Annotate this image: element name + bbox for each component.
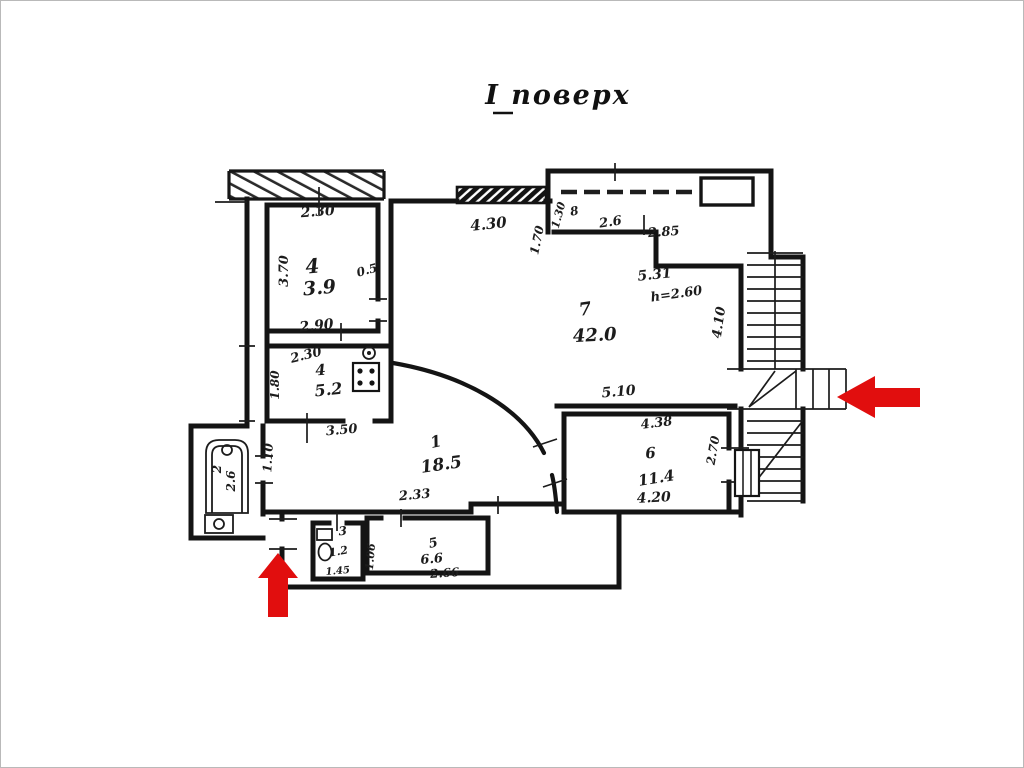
balcony-number: 8 — [569, 203, 580, 218]
walls-thick — [191, 171, 803, 587]
window-band — [457, 187, 546, 203]
dim-r1-bottom: 2.33 — [397, 487, 431, 505]
dim-r7-bottom: 5.10 — [601, 383, 637, 402]
room4-number: 4 — [304, 253, 320, 278]
room2-area: 2.6 — [224, 470, 238, 493]
dim-balcony-top: 2.85 — [646, 224, 680, 241]
room1-area: 18.5 — [419, 452, 463, 478]
room3-area: 1.2 — [328, 543, 349, 559]
dim-r7-right: 4.10 — [710, 306, 729, 339]
page-title: І поверх — [484, 80, 631, 111]
kitchen-sink-icon — [363, 347, 375, 359]
room7-number: 7 — [578, 298, 594, 321]
dim-r7-top: 4.30 — [469, 213, 508, 235]
dim-r4-door: 0.5 — [355, 261, 379, 280]
balcony-door-block — [701, 178, 753, 205]
dim-r7-height: h=2.60 — [650, 283, 704, 305]
floor-plan-page: І поверх — [0, 0, 1024, 768]
room3-number: 3 — [338, 524, 348, 539]
dim-r4-left: 3.70 — [277, 255, 292, 287]
dim-r1-left: 1.10 — [260, 442, 276, 473]
dim-r6-top: 4.38 — [640, 414, 673, 433]
dim-hall-width: 3.50 — [325, 422, 358, 440]
dim-r3-bottom: 1.45 — [325, 565, 350, 578]
entrance-arrow-right — [837, 376, 920, 418]
kitchen-number: 4 — [315, 361, 327, 380]
room7-area: 42.0 — [572, 324, 617, 347]
dim-r6-bottom: 4.20 — [636, 489, 671, 507]
dim-r5-left: 1.06 — [363, 542, 378, 570]
room6-area: 11.4 — [637, 466, 676, 489]
radiator — [735, 450, 759, 496]
porch-hatch-band — [229, 171, 384, 199]
dim-r7-diag: 5.31 — [637, 265, 673, 284]
washbasin-icon — [205, 515, 233, 533]
dim-r6-right: 2.70 — [703, 434, 722, 467]
room2-number: 2 — [210, 465, 224, 474]
balcony-area: 2.6 — [597, 214, 622, 232]
kitchen-area: 5.2 — [314, 379, 344, 401]
dim-kitchen-left: 1.80 — [268, 370, 282, 400]
room6-number: 6 — [645, 444, 658, 463]
room4-area: 3.9 — [302, 276, 337, 301]
dim-balcony-left: 1.30 — [549, 200, 569, 230]
window-hatch-band — [457, 187, 546, 203]
porch-hatch-fill — [230, 172, 383, 198]
room5-number: 5 — [427, 535, 439, 552]
floor-plan-svg: І поверх — [1, 1, 1023, 767]
stove-icon — [353, 363, 379, 391]
dim-r4-top: 2.30 — [299, 203, 335, 221]
dim-balcony-jog: 1.70 — [527, 224, 547, 256]
room1-number: 1 — [428, 431, 443, 452]
dim-r5-bottom: 2.66 — [429, 565, 461, 581]
